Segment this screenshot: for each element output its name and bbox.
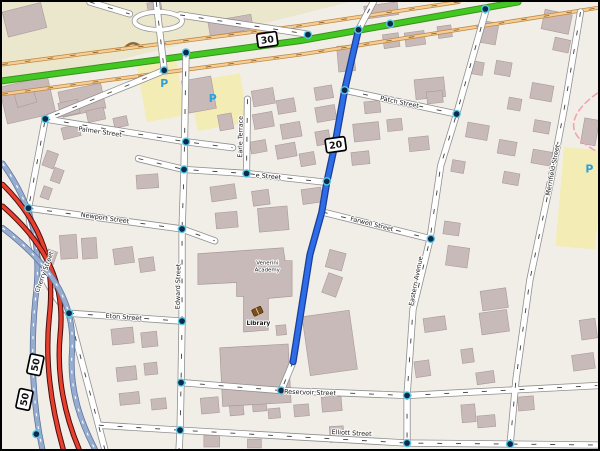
building <box>302 310 357 376</box>
building <box>426 90 443 103</box>
building <box>353 122 380 142</box>
building <box>461 404 476 423</box>
junction-dot <box>242 169 251 178</box>
junction-dot <box>340 86 349 95</box>
junction-dot <box>182 48 191 57</box>
map-canvas[interactable]: PPPPalmer Streete StreetNewport StreetEt… <box>2 2 598 449</box>
parking-icon: P <box>585 162 593 175</box>
building <box>251 189 270 206</box>
junction-dot <box>386 20 395 29</box>
junction-dot-core <box>177 427 183 433</box>
building <box>200 397 219 414</box>
building <box>351 151 370 166</box>
junction-dot <box>160 66 169 75</box>
building <box>502 171 520 185</box>
junction-dot-core <box>404 440 410 446</box>
junction-dot <box>178 225 187 234</box>
junction-dot-core <box>42 116 48 122</box>
junction-dot <box>65 309 74 318</box>
building <box>204 435 220 447</box>
building <box>479 309 510 334</box>
junction-dot-core <box>482 6 488 12</box>
school-label: Academy <box>255 268 281 274</box>
building <box>480 288 508 311</box>
junction-dot-core <box>342 87 348 93</box>
building <box>251 87 275 106</box>
building <box>445 245 469 268</box>
route-shield-number: 20 <box>329 139 344 152</box>
junction-dot-core <box>66 310 72 316</box>
junction-dot-core <box>183 139 189 145</box>
junction-dot <box>32 430 41 439</box>
library-label: Library <box>246 320 270 327</box>
junction-dot-core <box>356 27 362 33</box>
building <box>423 316 447 333</box>
junction-dot-core <box>161 68 167 74</box>
junction-dot <box>41 115 50 124</box>
building <box>215 211 238 229</box>
route-shield: 20 <box>325 136 347 152</box>
junction-dot <box>178 317 187 326</box>
route-shield: 50 <box>27 354 45 376</box>
junction-dot-core <box>179 318 185 324</box>
junction-dot-core <box>183 50 189 56</box>
building <box>139 257 156 273</box>
building <box>119 392 140 406</box>
building <box>461 348 475 363</box>
map-window: PPPPalmer Streete StreetNewport StreetEt… <box>0 0 600 451</box>
building <box>294 404 310 417</box>
school-label: Venerini <box>256 261 278 267</box>
building <box>111 327 134 345</box>
junction-dot <box>481 5 490 14</box>
junction-dot-core <box>244 171 250 177</box>
building <box>247 439 261 448</box>
junction-dot <box>304 30 313 39</box>
building <box>141 331 158 347</box>
junction-dot <box>452 110 461 119</box>
building <box>276 98 296 115</box>
building <box>579 318 597 340</box>
building <box>507 97 522 111</box>
building <box>315 104 337 122</box>
route-shield: 30 <box>257 31 279 47</box>
building <box>210 184 237 202</box>
building <box>572 352 596 371</box>
building <box>494 60 512 76</box>
building <box>443 221 460 236</box>
building <box>280 121 302 139</box>
junction-dot <box>403 391 412 400</box>
building <box>151 398 167 410</box>
building <box>414 360 431 378</box>
building <box>476 371 495 385</box>
street-label: Edward Street <box>174 263 183 309</box>
building <box>217 113 233 131</box>
building <box>299 151 316 166</box>
junction-dot <box>180 165 189 174</box>
junction-dot-core <box>387 21 393 27</box>
junction-dot-core <box>404 393 410 399</box>
junction-dot-core <box>178 380 184 386</box>
building <box>477 415 496 428</box>
building <box>276 325 287 336</box>
parking-icon: P <box>160 77 168 90</box>
junction-dot-core <box>454 111 460 117</box>
building <box>451 160 466 174</box>
earle-terrace <box>246 99 247 172</box>
route-shield-number: 30 <box>260 34 275 47</box>
building <box>113 246 135 264</box>
building <box>408 136 429 152</box>
junction-dot <box>176 426 185 435</box>
junction-dot <box>427 235 436 244</box>
building <box>530 82 554 101</box>
junction-dot-core <box>324 179 330 185</box>
building <box>314 85 334 101</box>
building <box>517 396 534 411</box>
building <box>81 237 97 259</box>
building <box>144 362 158 375</box>
building <box>387 118 403 131</box>
building <box>268 408 281 419</box>
junction-dot-core <box>428 236 434 242</box>
junction-dot <box>182 137 191 146</box>
building <box>533 120 551 134</box>
junction-dot-core <box>181 167 187 173</box>
junction-dot <box>354 25 363 34</box>
building <box>257 206 289 232</box>
junction-dot <box>322 177 331 186</box>
junction-dot-core <box>33 431 39 437</box>
building <box>497 139 517 156</box>
junction-dot-core <box>179 226 185 232</box>
building <box>59 234 77 259</box>
route-shield: 50 <box>16 388 34 410</box>
building <box>321 396 342 413</box>
junction-dot-core <box>305 32 311 38</box>
junction-dot <box>24 204 33 213</box>
junction-dot-core <box>507 441 513 447</box>
junction-dot <box>506 440 515 449</box>
building <box>364 100 381 113</box>
building <box>250 139 268 153</box>
academy-building <box>220 344 291 406</box>
building <box>275 142 297 159</box>
junction-dot-core <box>26 205 32 211</box>
junction-dot <box>177 378 186 387</box>
building <box>252 111 274 129</box>
junction-dot <box>403 439 412 448</box>
building <box>301 187 323 204</box>
street-label: Earle Terrace <box>236 116 245 158</box>
building <box>136 174 159 189</box>
parking-icon: P <box>209 92 217 105</box>
building <box>116 366 137 382</box>
